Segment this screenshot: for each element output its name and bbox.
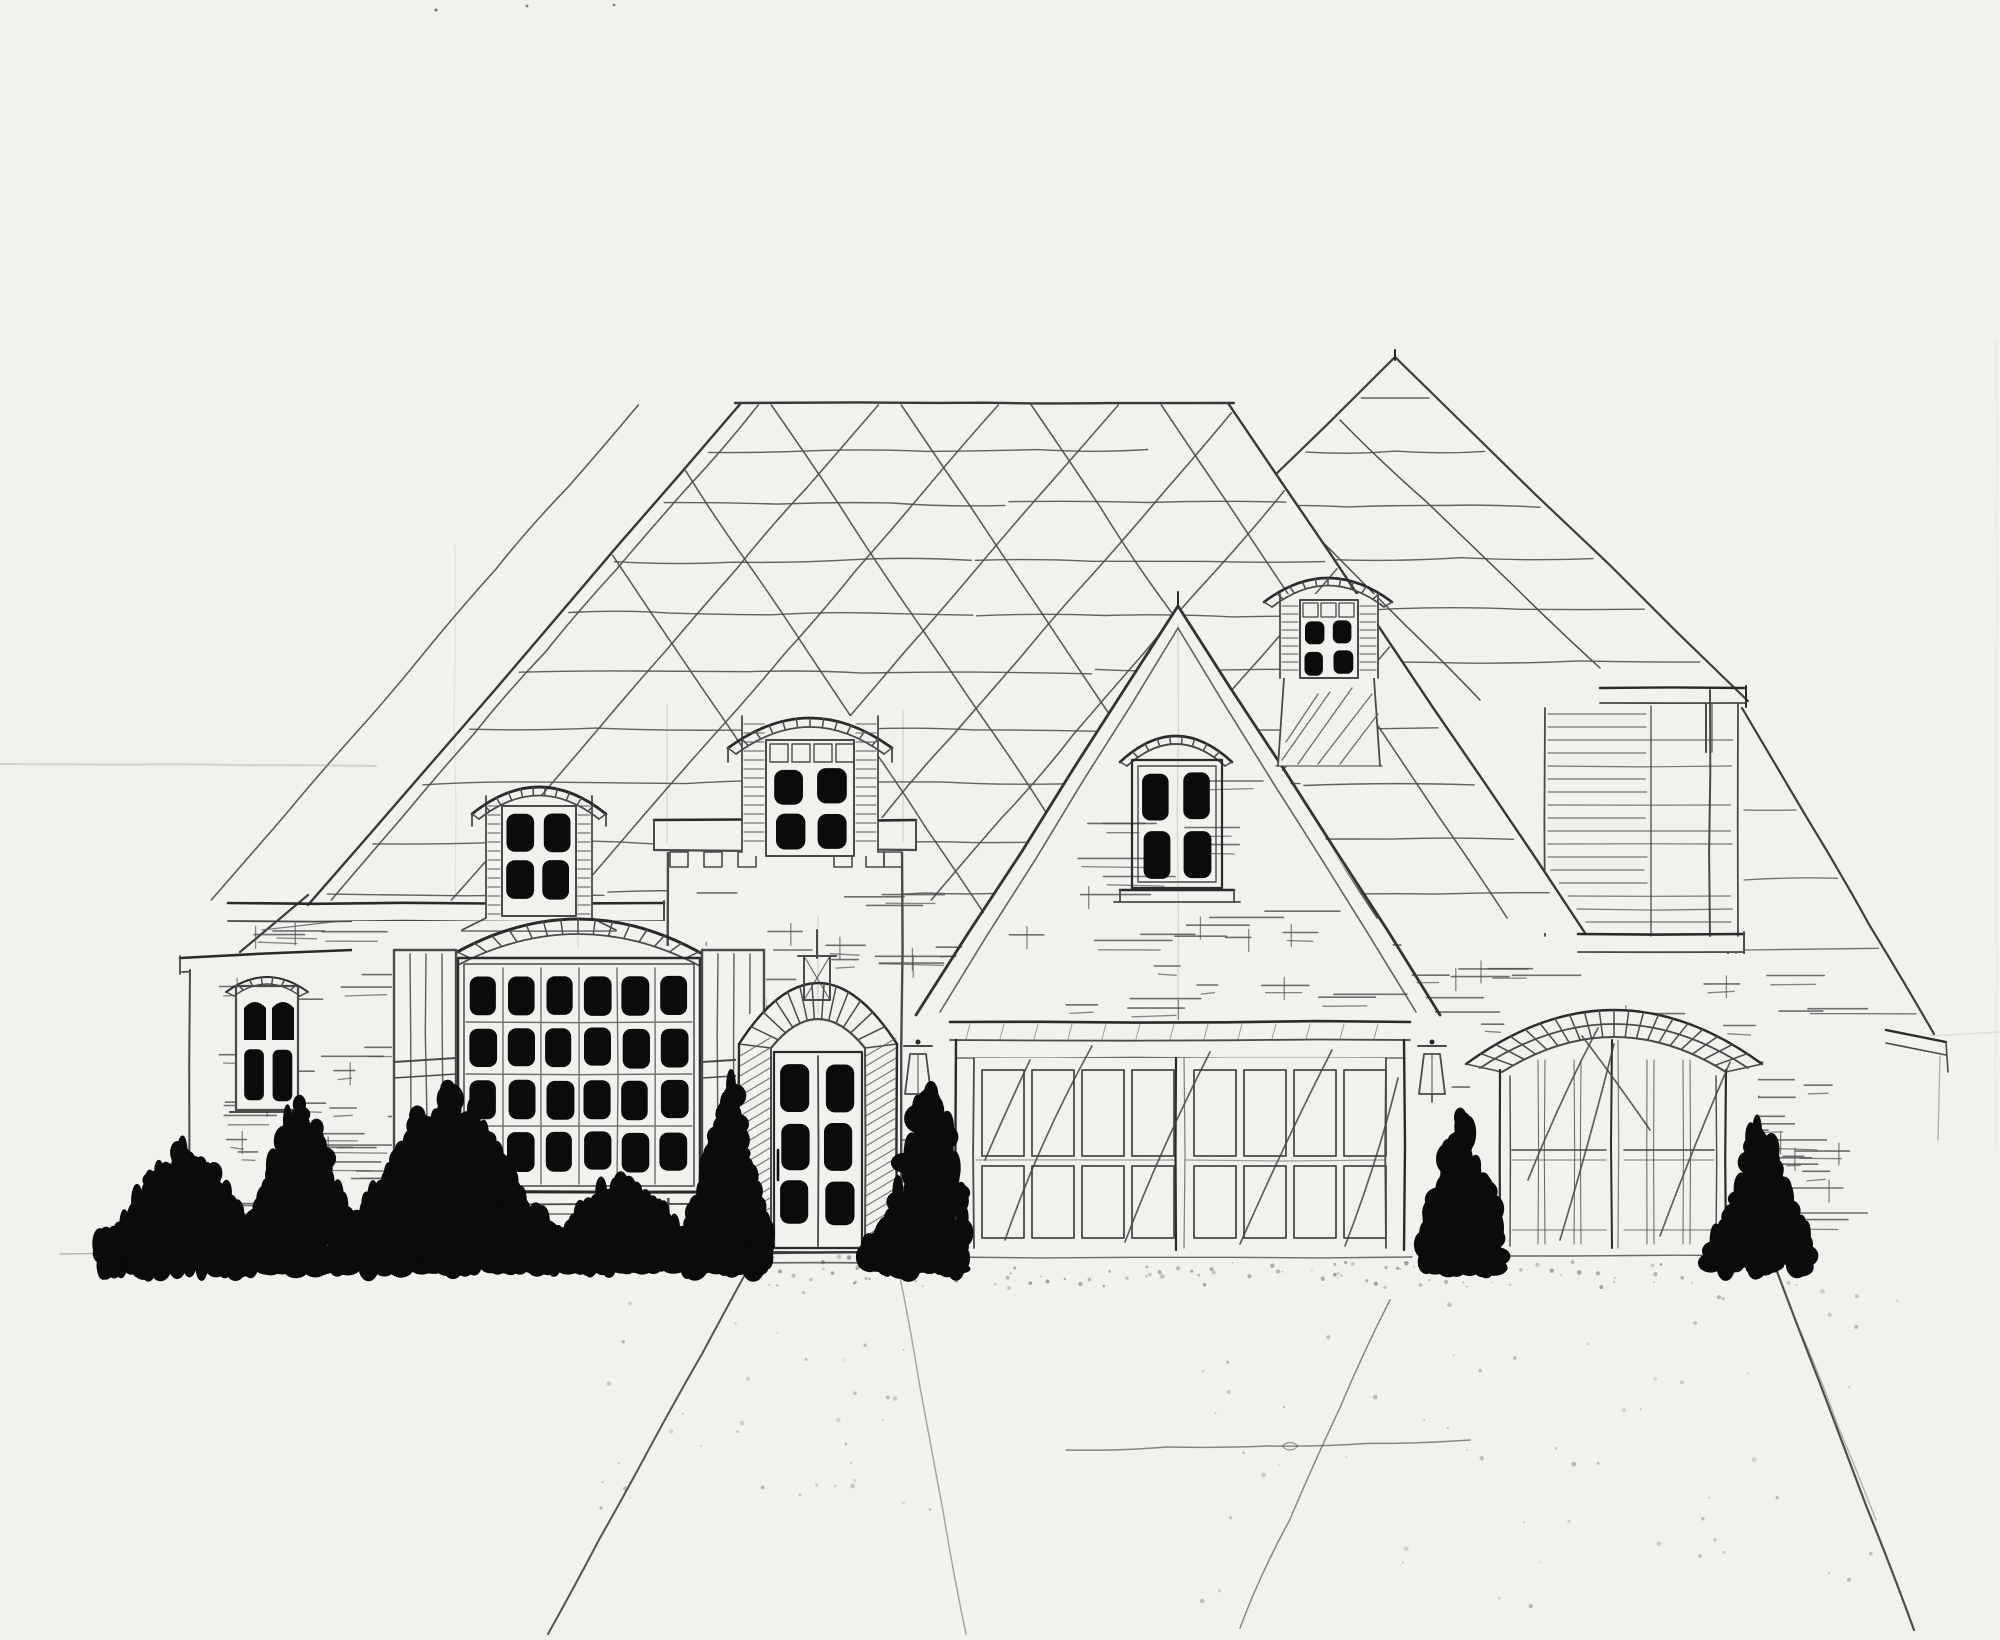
house-elevation-sketch: Hand-drawn front elevation sketch of a b… bbox=[0, 0, 2000, 1640]
sketch-page: Hand-drawn front elevation sketch of a b… bbox=[0, 0, 2000, 1640]
